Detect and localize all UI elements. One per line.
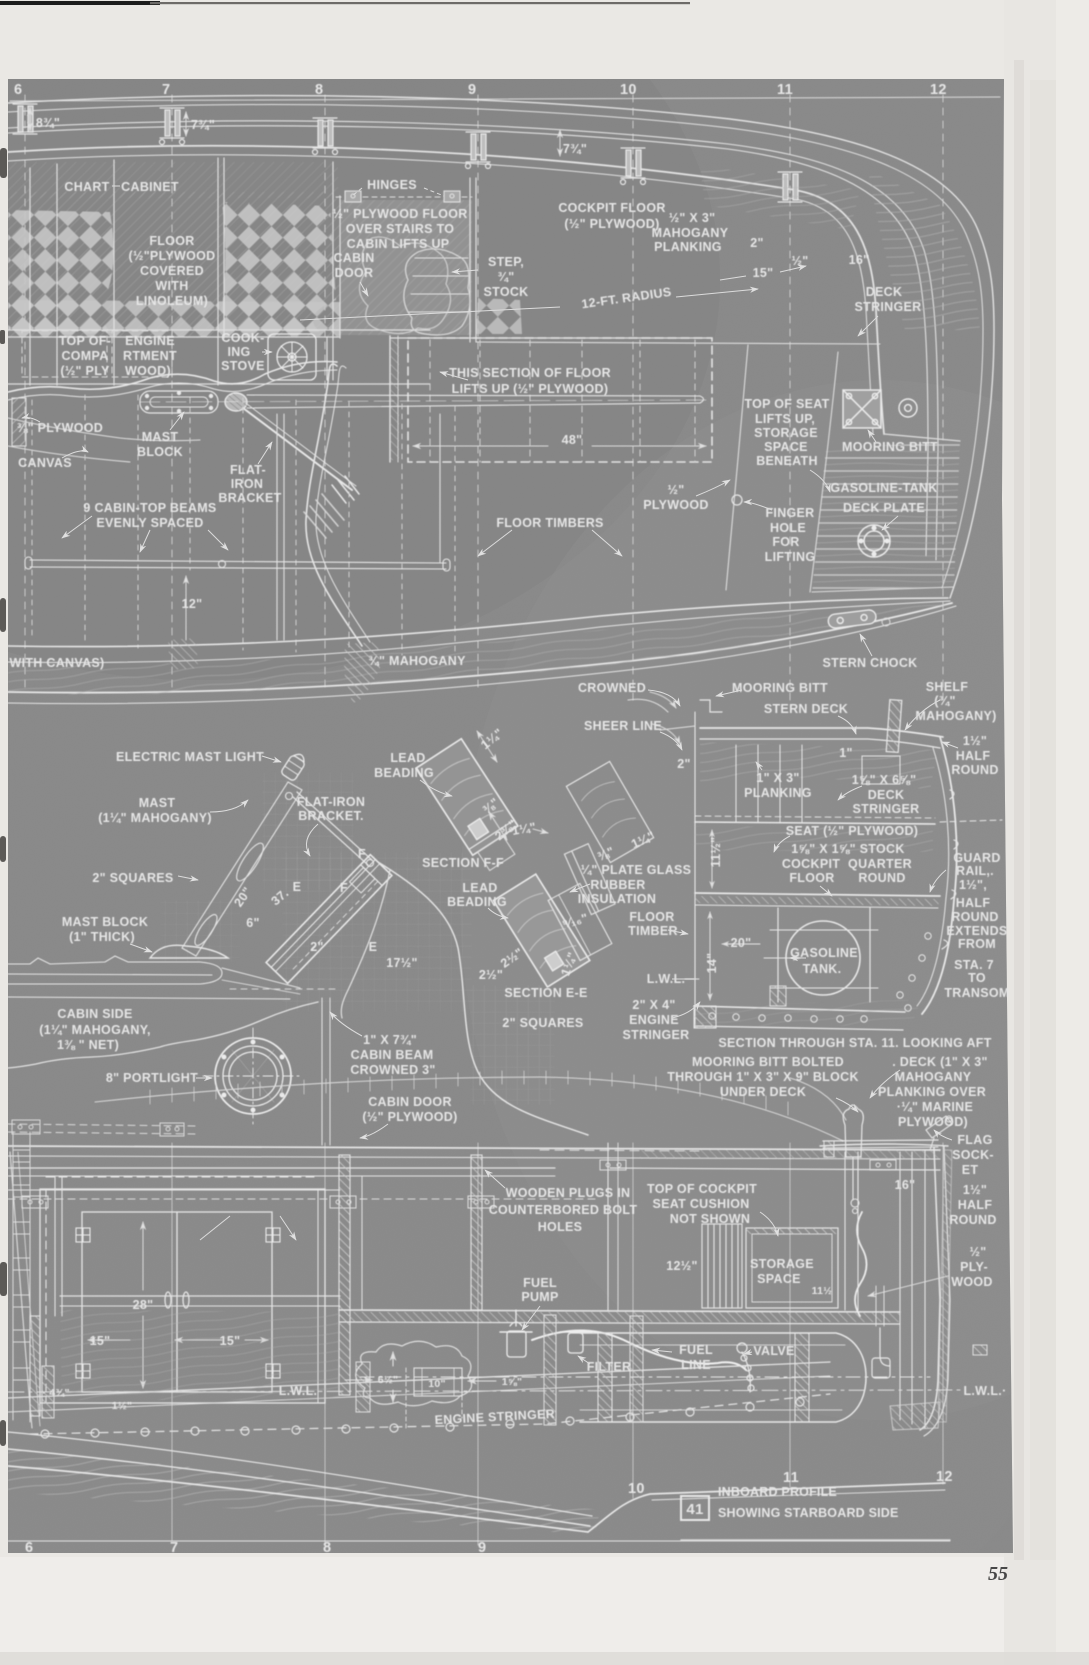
svg-text:6": 6": [246, 916, 259, 930]
svg-text:1½",: 1½",: [959, 878, 987, 892]
svg-text:TANK.: TANK.: [803, 962, 842, 976]
svg-text:7: 7: [162, 82, 170, 98]
svg-text:WITH CANVAS): WITH CANVAS): [9, 656, 104, 670]
svg-text:MAST: MAST: [142, 430, 179, 444]
svg-text:PLY-: PLY-: [960, 1260, 988, 1274]
svg-text:THIS SECTION OF FLOOR: THIS SECTION OF FLOOR: [449, 366, 611, 380]
svg-text:10: 10: [620, 82, 637, 98]
svg-text:STERN DECK: STERN DECK: [764, 702, 848, 716]
svg-text:CROWNED 3": CROWNED 3": [350, 1063, 435, 1077]
svg-text:STORAGE: STORAGE: [754, 426, 818, 440]
svg-text:TOP OF SEAT: TOP OF SEAT: [744, 397, 829, 411]
svg-text:¾": ¾": [498, 270, 515, 284]
svg-text:HOLE: HOLE: [770, 521, 806, 535]
svg-text:2" SQUARES: 2" SQUARES: [502, 1016, 583, 1030]
svg-text:1⅝" X 6⅝": 1⅝" X 6⅝": [852, 773, 917, 787]
svg-text:VALVE: VALVE: [753, 1344, 794, 1358]
svg-text:15": 15": [220, 1334, 241, 1348]
svg-text:ELECTRIC MAST LIGHT: ELECTRIC MAST LIGHT: [116, 750, 264, 764]
svg-text:1½": 1½": [112, 1400, 132, 1412]
svg-text:LEAD: LEAD: [462, 881, 497, 895]
svg-text:L.W.L.·: L.W.L.·: [963, 1384, 1006, 1398]
svg-text:ROUND: ROUND: [949, 1213, 996, 1227]
svg-text:SHELF: SHELF: [926, 680, 969, 694]
svg-text:MOORING BITT BOLTED: MOORING BITT BOLTED: [692, 1055, 844, 1069]
svg-text:1" X 7¾": 1" X 7¾": [363, 1033, 417, 1047]
svg-text:SECTION THROUGH STA. 11. LOOKI: SECTION THROUGH STA. 11. LOOKING AFT: [718, 1036, 991, 1050]
svg-text:GUARD: GUARD: [953, 851, 1000, 865]
svg-text:PLANKING OVER: PLANKING OVER: [878, 1085, 986, 1099]
svg-text:1⅝" X 1⅝" STOCK: 1⅝" X 1⅝" STOCK: [791, 842, 904, 856]
svg-text:2": 2": [677, 757, 690, 771]
svg-text:PUMP: PUMP: [521, 1290, 558, 1304]
svg-text:FLOOR: FLOOR: [629, 910, 674, 924]
svg-text:RAIL,.: RAIL,.: [956, 864, 994, 878]
svg-text:CABIN DOOR: CABIN DOOR: [368, 1095, 452, 1109]
svg-text:SECTION E-E: SECTION E-E: [504, 986, 587, 1000]
svg-text:STA. 7: STA. 7: [954, 958, 994, 972]
svg-text:FLOOR: FLOOR: [789, 871, 834, 885]
svg-text:GASOLINE-TANK: GASOLINE-TANK: [830, 481, 937, 495]
svg-text:DECK: DECK: [866, 285, 903, 299]
svg-text:FINGER: FINGER: [765, 506, 814, 520]
svg-text:11½": 11½": [709, 837, 723, 868]
svg-text:CABIN BEAM: CABIN BEAM: [351, 1048, 434, 1062]
svg-text:¾" MAHOGANY: ¾" MAHOGANY: [368, 654, 466, 668]
svg-text:F: F: [358, 847, 366, 861]
svg-text:½": ½": [668, 483, 685, 497]
svg-text:FUEL: FUEL: [523, 1276, 557, 1290]
svg-text:(1¼" MAHOGANY): (1¼" MAHOGANY): [98, 811, 212, 825]
svg-text:FLAG: FLAG: [957, 1133, 992, 1147]
svg-text:WOODEN PLUGS IN: WOODEN PLUGS IN: [506, 1186, 631, 1200]
svg-text:TO: TO: [968, 971, 986, 985]
svg-text:SEAT (½" PLYWOOD): SEAT (½" PLYWOOD): [786, 824, 919, 838]
svg-text:WOOD: WOOD: [951, 1275, 992, 1289]
svg-text:7¾": 7¾": [191, 118, 215, 132]
svg-text:ROUND: ROUND: [951, 910, 998, 924]
svg-text:COOK-: COOK-: [221, 331, 264, 345]
svg-text:LIFTS UP (½" PLYWOOD): LIFTS UP (½" PLYWOOD): [452, 382, 609, 396]
svg-text:MAST BLOCK: MAST BLOCK: [62, 915, 148, 929]
svg-text:16": 16": [895, 1178, 916, 1192]
svg-text:9 CABIN-TOP BEAMS: 9 CABIN-TOP BEAMS: [83, 501, 216, 515]
svg-text:STORAGE: STORAGE: [750, 1257, 814, 1271]
svg-text:· 4¾": · 4¾": [42, 1387, 70, 1399]
svg-text:CABIN SIDE: CABIN SIDE: [57, 1007, 132, 1021]
svg-text:. DECK (1" X 3": . DECK (1" X 3": [892, 1055, 988, 1069]
svg-text:2" X 4": 2" X 4": [632, 998, 675, 1012]
svg-text:RTMENT: RTMENT: [123, 349, 177, 363]
svg-text:1⅝": 1⅝": [502, 1376, 522, 1388]
svg-text:ING: ING: [227, 345, 250, 359]
svg-text:1" X 3": 1" X 3": [756, 771, 799, 785]
svg-text:QUARTER: QUARTER: [848, 857, 912, 871]
svg-text:11: 11: [783, 1470, 799, 1486]
svg-text:28": 28": [133, 1298, 154, 1312]
svg-text:LIFTS UP,: LIFTS UP,: [755, 412, 815, 426]
svg-text:8¾": 8¾": [36, 116, 60, 130]
svg-text:E: E: [293, 880, 302, 894]
svg-text:ROUND: ROUND: [858, 871, 905, 885]
svg-text:BLOCK: BLOCK: [137, 445, 183, 459]
svg-text:½" X 3": ½" X 3": [669, 211, 716, 225]
svg-text:DOOR: DOOR: [335, 266, 374, 280]
svg-text:MAHOGANY): MAHOGANY): [915, 709, 996, 723]
svg-text:(½" PLYWOOD): (½" PLYWOOD): [564, 217, 659, 231]
svg-text:2" SQUARES: 2" SQUARES: [92, 871, 173, 885]
svg-text:12": 12": [182, 597, 203, 611]
svg-text:PLANKING: PLANKING: [654, 240, 722, 254]
svg-text:LINE: LINE: [681, 1358, 711, 1372]
svg-text:HALF: HALF: [958, 1198, 993, 1212]
svg-text:LINOLEUM): LINOLEUM): [136, 294, 208, 308]
svg-text:ENGINE: ENGINE: [125, 334, 175, 348]
svg-text:10: 10: [628, 1481, 645, 1497]
svg-text:RUBBER: RUBBER: [590, 878, 645, 892]
svg-text:ENGINE: ENGINE: [629, 1013, 679, 1027]
svg-text:11: 11: [777, 82, 793, 98]
svg-text:INSULATION: INSULATION: [578, 892, 656, 906]
svg-text:THROUGH 1" X 3" X 9" BLOCK: THROUGH 1" X 3" X 9" BLOCK: [667, 1070, 859, 1084]
svg-text:TOP OF-: TOP OF-: [59, 334, 111, 348]
svg-text:FILTER: FILTER: [587, 1360, 632, 1374]
svg-text:12½": 12½": [666, 1259, 697, 1273]
svg-text:CHART: CHART: [64, 180, 109, 194]
svg-text:BRACKET: BRACKET: [218, 491, 281, 505]
svg-text:LIFTING: LIFTING: [765, 550, 816, 564]
svg-text:COMPA: COMPA: [61, 349, 108, 363]
svg-text:(½"PLYWOOD: (½"PLYWOOD: [129, 249, 216, 263]
svg-text:2": 2": [310, 940, 323, 954]
svg-text:L.W.L.: L.W.L.: [279, 1384, 318, 1398]
svg-text:15": 15": [90, 1334, 111, 1348]
svg-text:(½" PLY: (½" PLY: [60, 364, 110, 378]
svg-text:ROUND: ROUND: [951, 763, 998, 777]
svg-text:(1¼" MAHOGANY,: (1¼" MAHOGANY,: [39, 1023, 151, 1037]
svg-text:HALF: HALF: [956, 896, 991, 910]
svg-text:BENEATH: BENEATH: [756, 454, 818, 468]
svg-text:CABIN: CABIN: [333, 251, 374, 265]
svg-text:2½": 2½": [479, 968, 503, 982]
svg-text:OVER STAIRS TO: OVER STAIRS TO: [346, 222, 455, 236]
svg-text:PLANKING: PLANKING: [744, 786, 812, 800]
svg-text:SPACE: SPACE: [757, 1272, 801, 1286]
svg-text:SHOWING STARBOARD SIDE: SHOWING STARBOARD SIDE: [718, 1506, 899, 1520]
svg-text:FLAT-: FLAT-: [230, 463, 266, 477]
svg-text:TOP OF COCKPIT: TOP OF COCKPIT: [647, 1182, 757, 1196]
svg-text:STOCK: STOCK: [483, 285, 528, 299]
svg-text:E: E: [369, 940, 378, 954]
svg-text:1½": 1½": [963, 1183, 987, 1197]
svg-text:MAHOGANY: MAHOGANY: [652, 226, 729, 240]
svg-text:CABIN LIFTS UP: CABIN LIFTS UP: [347, 237, 450, 251]
svg-text:HALF: HALF: [956, 749, 991, 763]
svg-text:10": 10": [428, 1378, 446, 1390]
svg-text:COCKPIT FLOOR: COCKPIT FLOOR: [558, 201, 665, 215]
svg-text:BRACKET.: BRACKET.: [298, 809, 364, 823]
svg-text:55: 55: [988, 1563, 1008, 1585]
svg-text:LEAD: LEAD: [390, 751, 425, 765]
svg-text:⅜" PLYWOOD: ⅜" PLYWOOD: [17, 421, 103, 435]
svg-text:EXTENDS: EXTENDS: [946, 924, 1007, 938]
svg-text:SOCK-: SOCK-: [952, 1148, 994, 1162]
svg-text:8" PORTLIGHT: 8" PORTLIGHT: [106, 1071, 198, 1085]
svg-text:BEADING: BEADING: [374, 766, 434, 780]
svg-text:MOORING BITT: MOORING BITT: [732, 681, 828, 695]
svg-text:(½" PLYWOOD): (½" PLYWOOD): [362, 1110, 457, 1124]
svg-text:17½": 17½": [386, 956, 417, 970]
svg-text:HOLES: HOLES: [538, 1220, 583, 1234]
svg-text:WOOD): WOOD): [125, 364, 171, 378]
svg-text:FUEL: FUEL: [679, 1343, 713, 1357]
svg-text:TRANSOM: TRANSOM: [944, 986, 1009, 1000]
svg-text:BEADING: BEADING: [447, 895, 507, 909]
svg-text:STRINGER: STRINGER: [853, 802, 920, 816]
svg-text:SHEER LINE: SHEER LINE: [584, 719, 662, 733]
svg-text:STRINGER: STRINGER: [623, 1028, 690, 1042]
svg-text:F: F: [340, 881, 348, 895]
svg-text:CANVAS: CANVAS: [18, 456, 72, 470]
svg-text:(1" THICK): (1" THICK): [69, 930, 135, 944]
svg-text:41: 41: [686, 1501, 703, 1518]
svg-text:2": 2": [750, 236, 763, 250]
svg-text:7¾": 7¾": [563, 142, 587, 156]
svg-text:6: 6: [14, 82, 22, 98]
svg-text:½": ½": [970, 1245, 987, 1259]
svg-text:FLOOR TIMBERS: FLOOR TIMBERS: [496, 516, 603, 530]
svg-text:12: 12: [930, 82, 947, 98]
svg-text:48": 48": [562, 433, 583, 447]
svg-text:COCKPIT: COCKPIT: [782, 857, 840, 871]
svg-text:14": 14": [705, 953, 719, 974]
svg-text:6½": 6½": [378, 1374, 398, 1386]
svg-text:TIMBER: TIMBER: [628, 924, 678, 938]
svg-text:1": 1": [839, 746, 852, 760]
svg-text:MOORING BITT: MOORING BITT: [842, 440, 938, 454]
svg-text:16": 16": [849, 253, 870, 267]
svg-text:NOT SHOWN: NOT SHOWN: [670, 1212, 750, 1226]
svg-text:12: 12: [936, 1469, 953, 1485]
svg-text:UNDER DECK: UNDER DECK: [720, 1085, 806, 1099]
svg-text:11½: 11½: [812, 1285, 833, 1297]
svg-text:1½": 1½": [963, 734, 987, 748]
svg-text:PLYWOOD: PLYWOOD: [643, 498, 709, 512]
svg-text:¼" PLATE GLASS: ¼" PLATE GLASS: [581, 863, 692, 877]
svg-text:SECTION F-F: SECTION F-F: [422, 856, 504, 870]
svg-text:CROWNED: CROWNED: [578, 681, 646, 695]
svg-text:WITH: WITH: [155, 279, 188, 293]
svg-text:½" PLYWOOD FLOOR: ½" PLYWOOD FLOOR: [332, 207, 467, 221]
svg-text:STERN CHOCK: STERN CHOCK: [823, 656, 918, 670]
svg-text:STRINGER: STRINGER: [855, 300, 922, 314]
svg-text:HINGES: HINGES: [367, 178, 417, 192]
svg-text:INBOARD PROFILE: INBOARD PROFILE: [718, 1485, 837, 1499]
svg-text:FLOOR: FLOOR: [149, 234, 194, 248]
svg-text:STEP,: STEP,: [488, 255, 524, 269]
svg-text:MAHOGANY: MAHOGANY: [895, 1070, 972, 1084]
svg-text:COVERED: COVERED: [140, 264, 204, 278]
svg-text:9: 9: [468, 82, 476, 98]
svg-text:MAST: MAST: [139, 796, 176, 810]
svg-text:DECK: DECK: [868, 788, 905, 802]
svg-text:IRON: IRON: [231, 477, 263, 491]
svg-text:ET: ET: [962, 1163, 979, 1177]
svg-text:FROM: FROM: [958, 937, 996, 951]
svg-text:FLAT-IRON: FLAT-IRON: [297, 795, 365, 809]
svg-text:DECK PLATE: DECK PLATE: [843, 501, 925, 515]
svg-text:·¼" MARINE: ·¼" MARINE: [897, 1100, 973, 1114]
svg-text:CABINET: CABINET: [121, 180, 179, 194]
svg-text:COUNTERBORED BOLT: COUNTERBORED BOLT: [489, 1203, 638, 1217]
svg-text:EVENLY SPACED: EVENLY SPACED: [96, 516, 203, 530]
svg-text:15": 15": [753, 266, 774, 280]
svg-text:1⅜ " NET): 1⅜ " NET): [57, 1038, 119, 1052]
svg-text:SPACE: SPACE: [764, 440, 808, 454]
svg-text:FOR: FOR: [772, 535, 799, 549]
svg-text:STOVE: STOVE: [221, 359, 265, 373]
svg-text:SEAT CUSHION: SEAT CUSHION: [652, 1197, 749, 1211]
svg-text:PLYWOOD): PLYWOOD): [898, 1115, 968, 1129]
svg-text:20": 20": [731, 936, 752, 950]
